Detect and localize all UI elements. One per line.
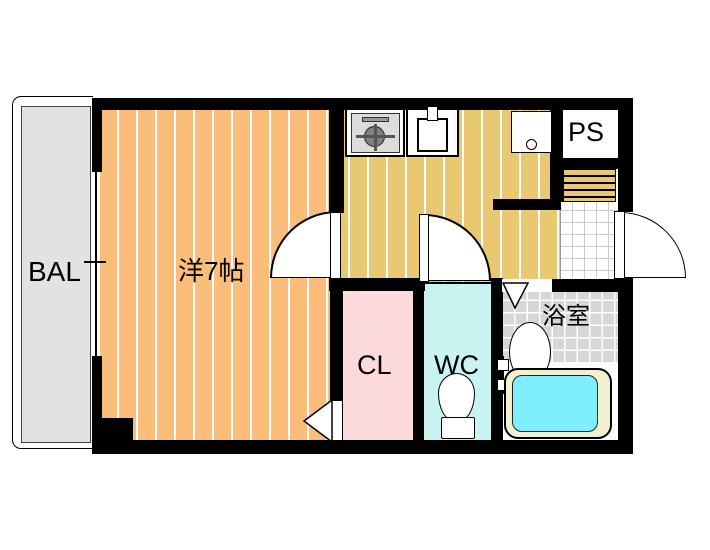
wall-right-lower — [618, 277, 633, 454]
bath-folding-door-icon — [500, 281, 532, 311]
wc-door-leaf — [419, 214, 429, 282]
entrance-tile-floor — [560, 202, 618, 282]
wall-right-upper — [618, 98, 633, 212]
washbasin-fixture-top — [497, 359, 509, 371]
wall-closet-left — [330, 278, 343, 402]
wall-left-upper — [92, 98, 102, 172]
toilet-bowl-icon — [438, 373, 475, 421]
wall-bottom — [92, 440, 633, 454]
closet-folding-door-icon — [302, 398, 334, 444]
wall-laundry-stub — [493, 199, 561, 210]
bathtub-water — [512, 375, 598, 432]
wall-bath-top — [551, 279, 618, 292]
wall-room-kitchen — [329, 106, 344, 213]
stove-grill-bar — [362, 117, 389, 122]
floorplan-canvas: BAL 洋7帖 CL WC 浴室 PS — [0, 0, 710, 550]
stove-cross-v — [374, 124, 377, 151]
window-center-tick — [84, 261, 106, 263]
toilet-tank — [441, 417, 475, 439]
washer-drain-icon — [526, 139, 537, 150]
entrance-door-swing-arc — [620, 212, 686, 278]
kitchen-faucet-icon — [427, 106, 438, 121]
main-room-label: 洋7帖 — [178, 258, 244, 284]
toilet-label: WC — [434, 352, 479, 379]
shoe-cabinet — [563, 167, 616, 202]
kitchen-sink-basin — [417, 118, 448, 152]
wall-closet-top — [329, 278, 425, 291]
closet-label: CL — [357, 352, 392, 379]
pipe-space-label: PS — [568, 119, 604, 146]
room-door-leaf — [330, 212, 341, 279]
balcony-label: BAL — [28, 258, 81, 286]
window-line — [95, 170, 97, 358]
wall-closet-wc — [413, 278, 424, 440]
entrance-door-leaf — [614, 211, 625, 279]
bathroom-label: 浴室 — [542, 305, 590, 329]
